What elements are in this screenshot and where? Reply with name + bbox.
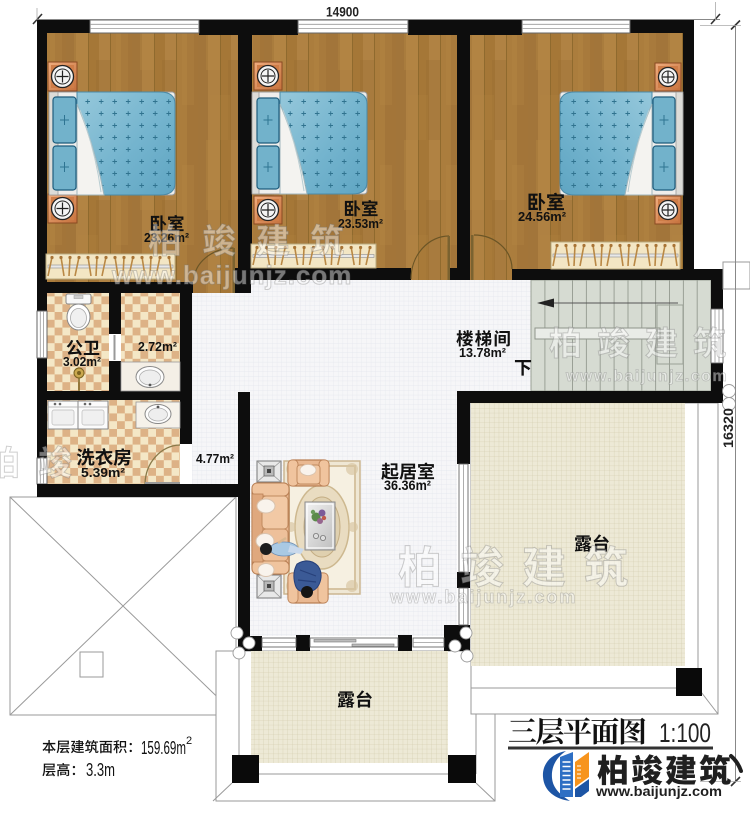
svg-text:4.77m²: 4.77m² [196, 451, 235, 466]
svg-text:2: 2 [186, 735, 192, 747]
svg-text:www.baijunjz.com: www.baijunjz.com [389, 587, 577, 607]
svg-text:16320: 16320 [721, 408, 736, 448]
svg-text:13.78m²: 13.78m² [459, 346, 506, 360]
svg-text:3.3m: 3.3m [86, 760, 115, 780]
svg-text:3.02m²: 3.02m² [63, 354, 102, 369]
svg-text:2.72m²: 2.72m² [138, 339, 178, 354]
svg-text:1:100: 1:100 [659, 718, 711, 748]
svg-text:5.39m²: 5.39m² [81, 465, 126, 480]
svg-text:159.69m: 159.69m [141, 738, 186, 758]
svg-text:14900: 14900 [326, 5, 359, 20]
svg-text:www.baijunjz.com: www.baijunjz.com [565, 368, 728, 385]
svg-text:www.baijunjz.com: www.baijunjz.com [595, 784, 722, 799]
svg-text:24.56m²: 24.56m² [518, 209, 567, 224]
svg-text:23.53m²: 23.53m² [338, 216, 384, 231]
svg-text:www.baijunjz.com: www.baijunjz.com [111, 260, 352, 290]
svg-text:36.36m²: 36.36m² [384, 478, 431, 493]
